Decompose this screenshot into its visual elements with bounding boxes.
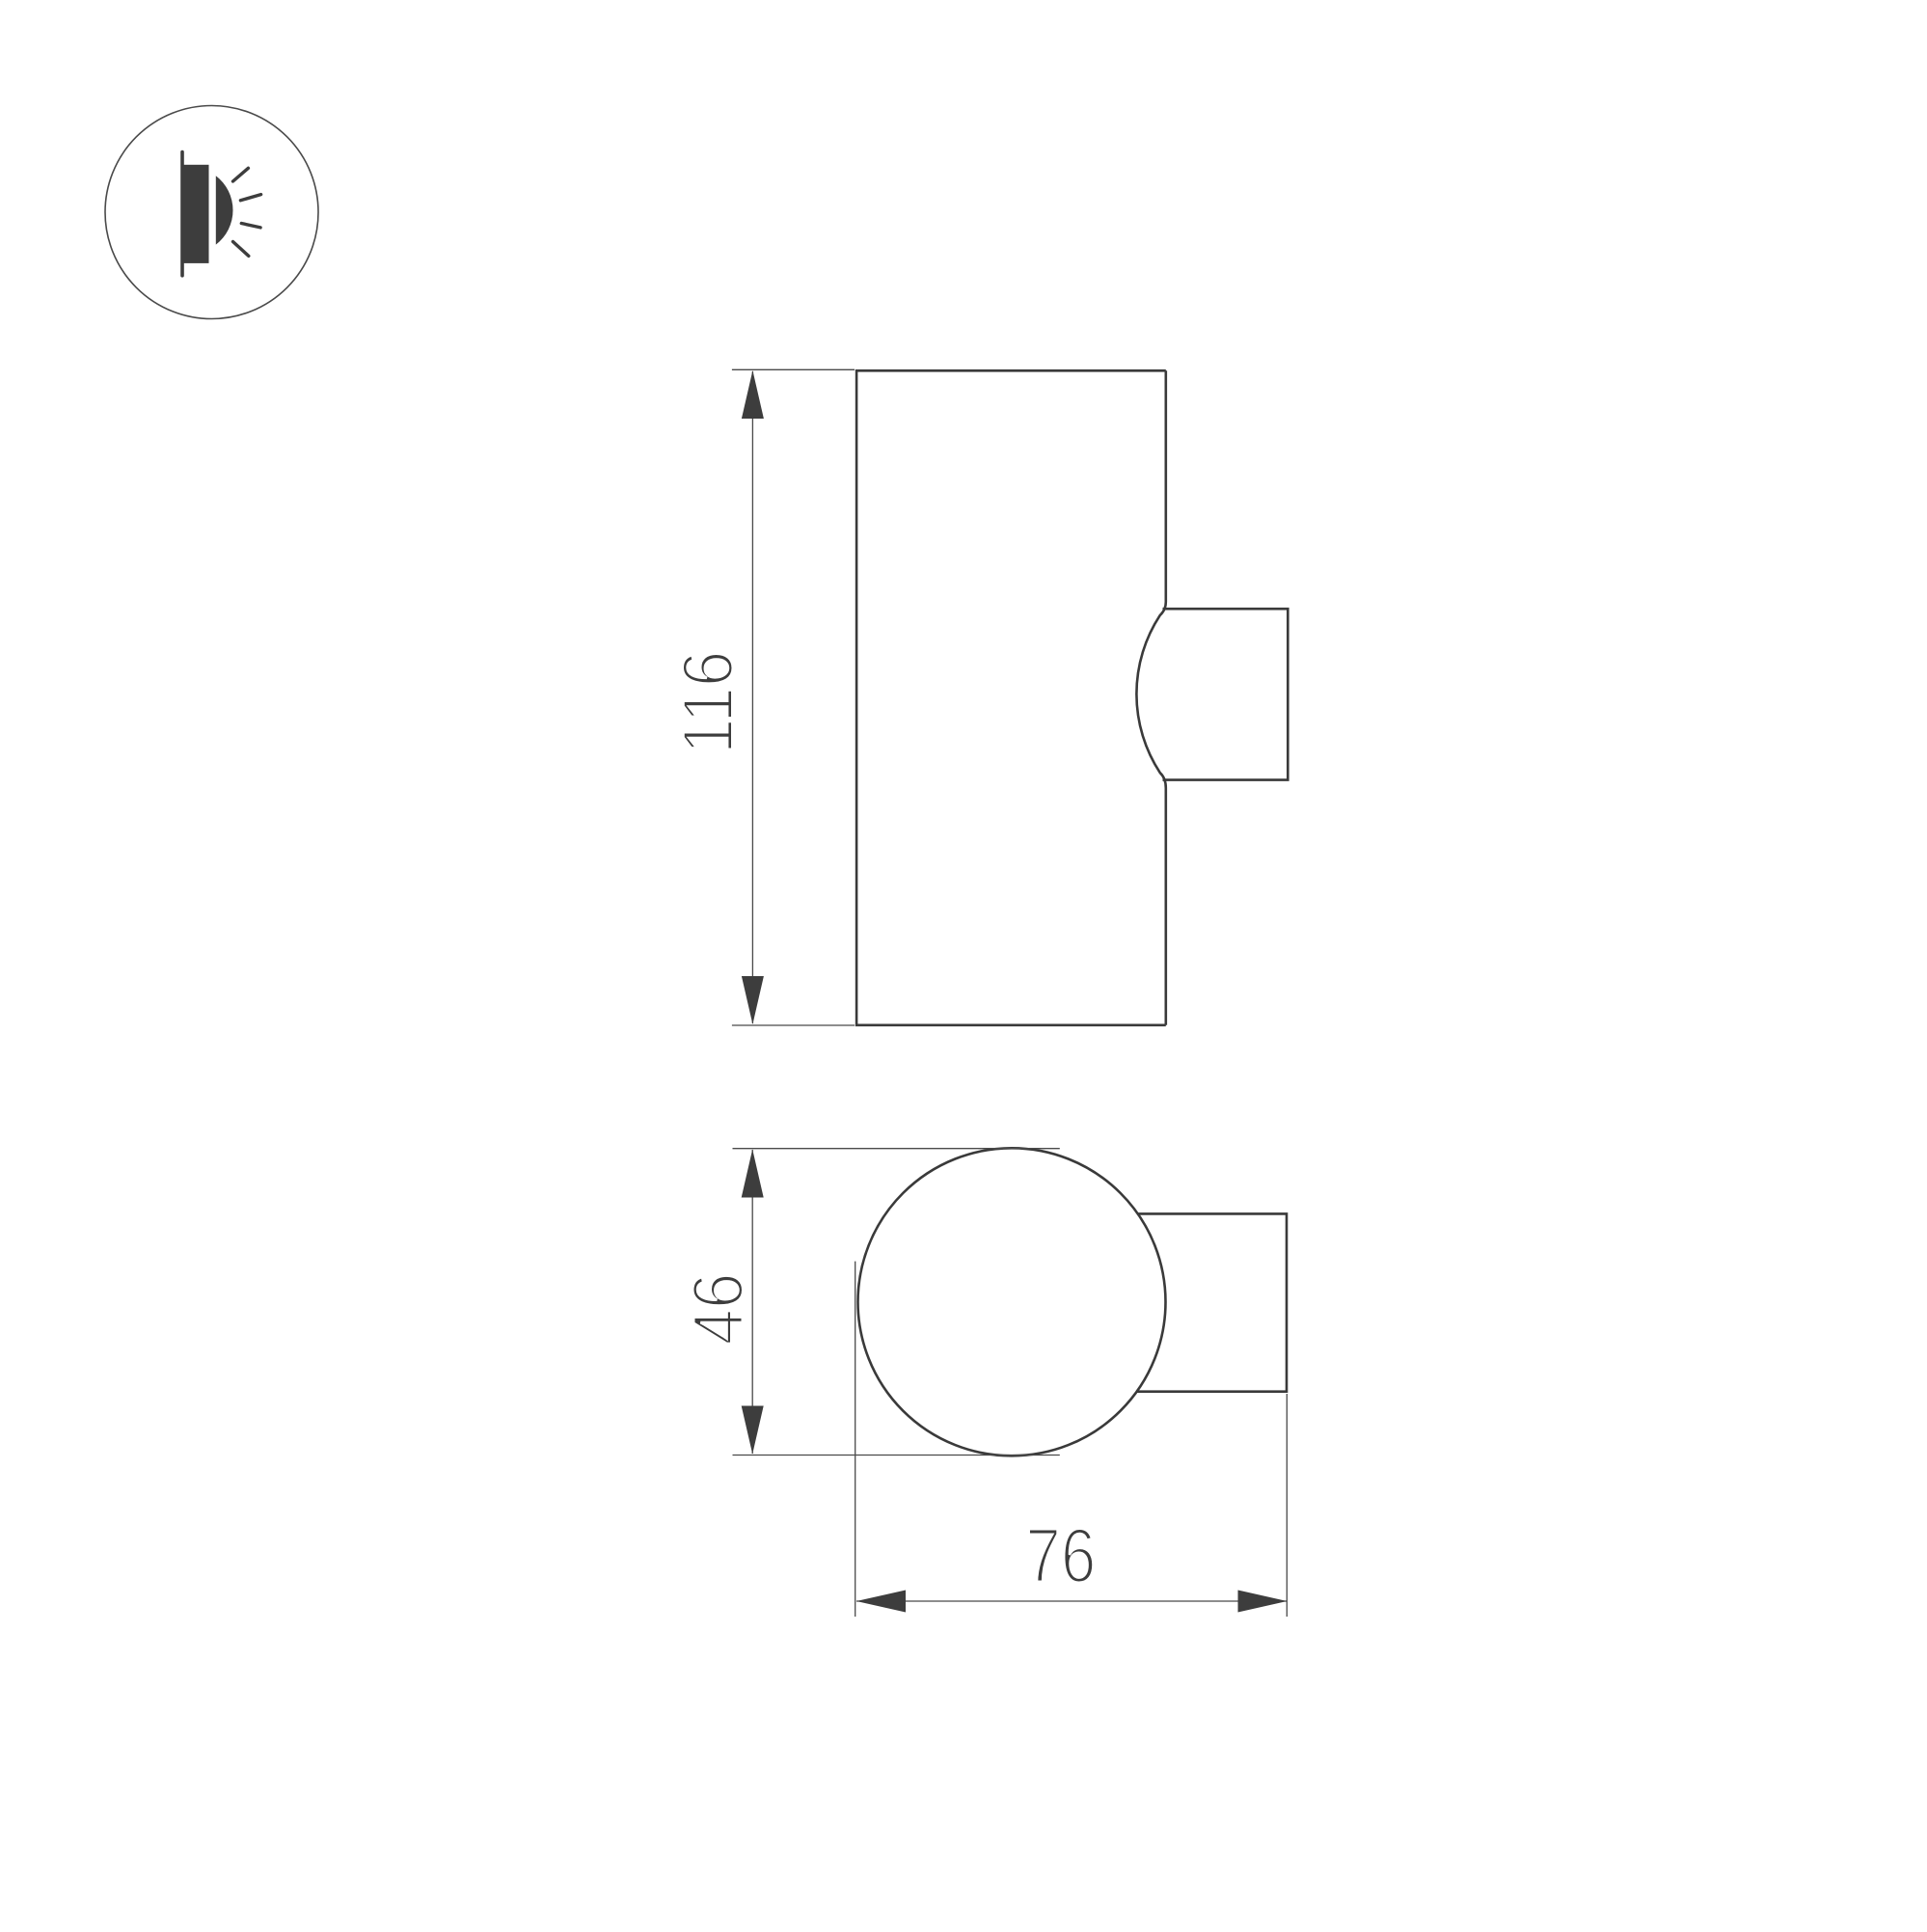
svg-text:46: 46 — [678, 1273, 758, 1346]
svg-text:76: 76 — [1025, 1512, 1096, 1599]
svg-text:116: 116 — [668, 651, 748, 754]
